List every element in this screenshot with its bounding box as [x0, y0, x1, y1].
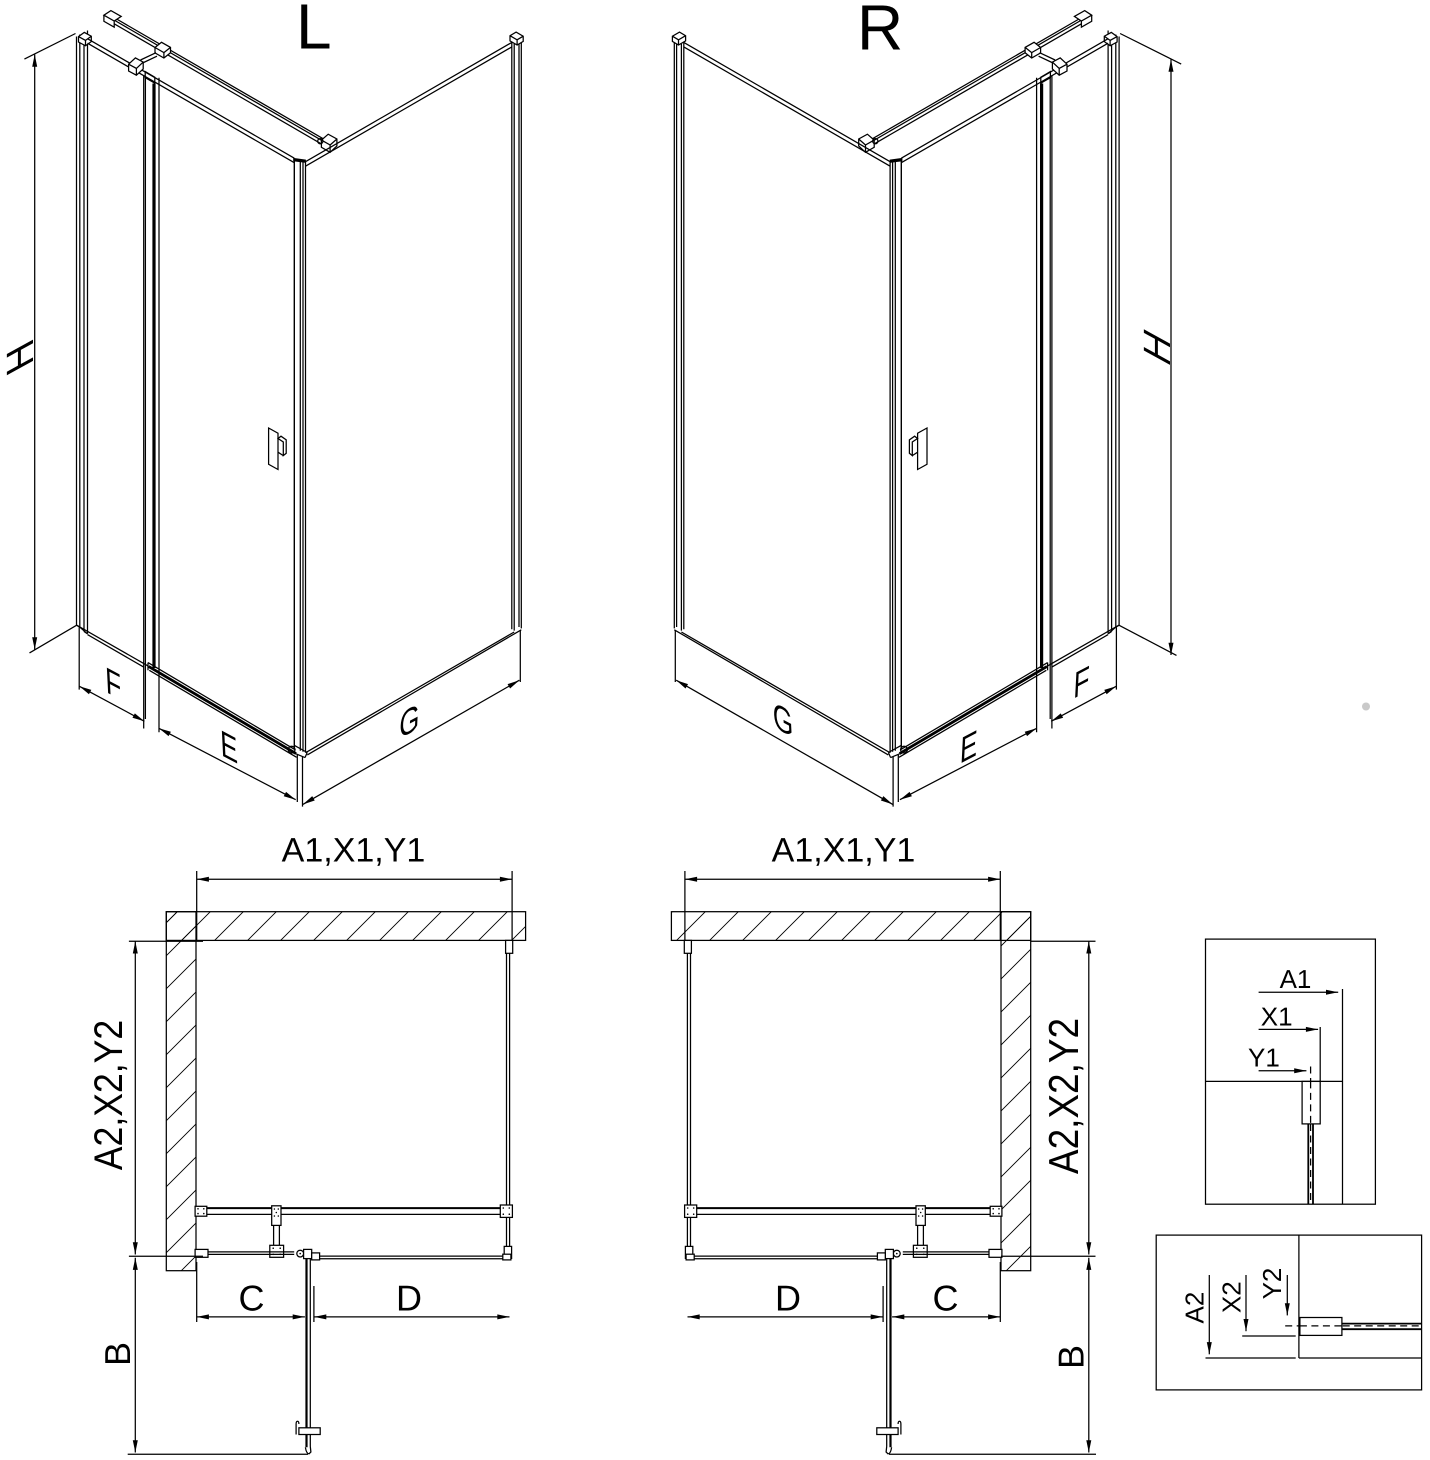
svg-text:C: C	[933, 1278, 959, 1319]
svg-text:B: B	[97, 1342, 138, 1366]
svg-text:H: H	[1137, 322, 1179, 373]
svg-text:Y1: Y1	[1248, 1043, 1280, 1073]
svg-text:A2: A2	[1180, 1292, 1210, 1324]
svg-text:A1: A1	[1280, 964, 1312, 994]
svg-text:F: F	[1073, 658, 1091, 707]
svg-text:A2,X2,Y2: A2,X2,Y2	[1040, 1018, 1087, 1174]
svg-text:H: H	[0, 332, 42, 383]
svg-text:D: D	[775, 1278, 801, 1319]
svg-text:B: B	[1051, 1345, 1092, 1369]
svg-text:E: E	[959, 722, 978, 772]
svg-text:E: E	[219, 722, 238, 772]
svg-text:L: L	[296, 0, 332, 63]
svg-text:C: C	[239, 1278, 265, 1319]
svg-text:D: D	[396, 1278, 422, 1319]
svg-text:R: R	[857, 0, 903, 64]
svg-text:A2,X2,Y2: A2,X2,Y2	[87, 1020, 131, 1170]
svg-text:Y2: Y2	[1257, 1268, 1287, 1300]
svg-text:A1,X1,Y1: A1,X1,Y1	[282, 832, 426, 870]
svg-text:X1: X1	[1261, 1001, 1293, 1031]
svg-text:A1,X1,Y1: A1,X1,Y1	[772, 832, 916, 870]
svg-text:G: G	[772, 694, 794, 746]
svg-text:X2: X2	[1216, 1281, 1246, 1313]
